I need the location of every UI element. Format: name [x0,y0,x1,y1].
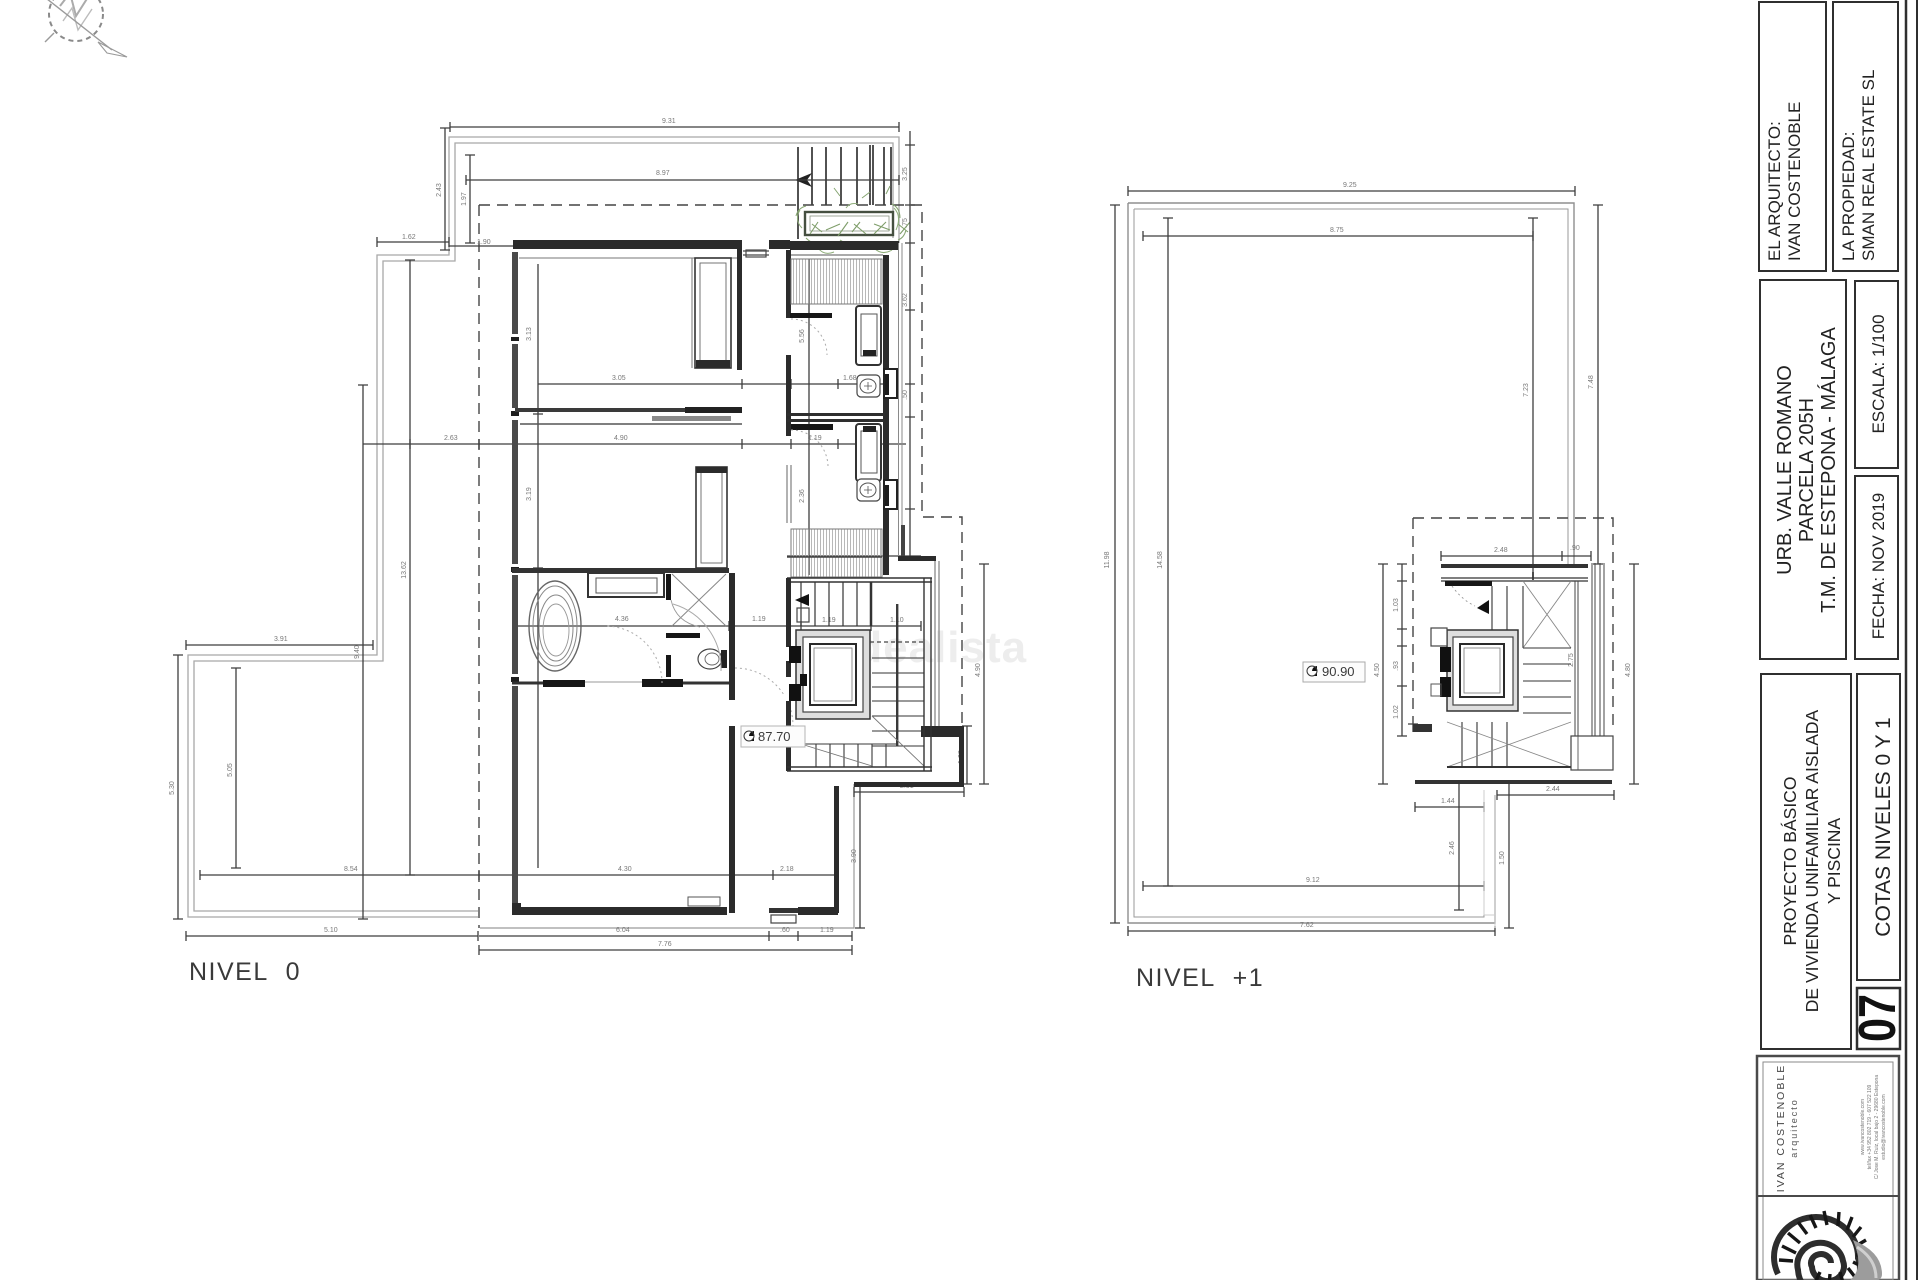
svg-text:.90: .90 [1570,545,1580,552]
svg-text:3.90: 3.90 [851,849,858,863]
svg-text:5.30: 5.30 [169,781,176,795]
svg-text:.93: .93 [1393,661,1400,671]
svg-text:NIVEL +1: NIVEL +1 [1136,964,1264,992]
svg-text:DE VIVIENDA UNIFAMILIAR AISLAD: DE VIVIENDA UNIFAMILIAR AISLADA [1802,709,1822,1012]
svg-text:9.12: 9.12 [1306,877,1320,884]
svg-text:4.90: 4.90 [614,435,628,442]
svg-text:FECHA: NOV 2019: FECHA: NOV 2019 [1869,493,1888,639]
svg-text:NIVEL 0: NIVEL 0 [189,958,301,986]
svg-text:4.30: 4.30 [618,866,632,873]
svg-text:13.62: 13.62 [401,561,408,579]
svg-text:87.70: 87.70 [758,729,791,744]
svg-text:07: 07 [1849,994,1907,1042]
svg-text:3.25: 3.25 [902,167,909,181]
svg-text:LA PROPIEDAD:: LA PROPIEDAD: [1839,132,1858,261]
svg-text:90.90: 90.90 [1322,664,1355,679]
svg-text:2.48: 2.48 [1494,547,1508,554]
svg-text:9.40: 9.40 [354,645,361,659]
svg-text:1.03: 1.03 [1393,598,1400,612]
svg-text:arquitecto: arquitecto [1789,1098,1799,1158]
svg-text:.60: .60 [780,927,790,934]
svg-text:.50: .50 [902,390,909,400]
svg-text:8.97: 8.97 [656,170,670,177]
svg-text:Y PISCINA: Y PISCINA [1824,818,1844,905]
svg-text:2.44: 2.44 [1546,786,1560,793]
svg-text:2.43: 2.43 [436,183,443,197]
svg-text:PROYECTO BÁSICO: PROYECTO BÁSICO [1780,777,1800,946]
svg-text:1.62: 1.62 [402,234,416,241]
svg-text:3.13: 3.13 [526,327,533,341]
svg-text:2.36: 2.36 [799,489,806,503]
svg-text:1.44: 1.44 [1441,798,1455,805]
svg-text:8.75: 8.75 [1330,227,1344,234]
svg-text:tel/fax +34 952 802 719 - 607: tel/fax +34 952 802 719 - 607 522 109 [1867,1084,1873,1169]
svg-text:4.36: 4.36 [615,616,629,623]
svg-text:6.04: 6.04 [616,927,630,934]
svg-text:1.02: 1.02 [1393,705,1400,719]
svg-text:EL ARQUITECTO:: EL ARQUITECTO: [1765,121,1784,261]
svg-text:4.80: 4.80 [1625,663,1632,677]
svg-text:3.19: 3.19 [526,487,533,501]
svg-text:7.23: 7.23 [1523,383,1530,397]
svg-text:C/ Jose M. Ruiz, local bajo 2: C/ Jose M. Ruiz, local bajo 2 - 29680 Es… [1874,1075,1880,1179]
svg-text:7.62: 7.62 [1300,922,1314,929]
svg-text:11.98: 11.98 [1104,551,1111,568]
svg-text:IVAN COSTENOBLE: IVAN COSTENOBLE [1775,1064,1787,1192]
svg-text:1.19: 1.19 [820,927,834,934]
svg-text:PARCELA 205H: PARCELA 205H [1796,398,1818,542]
svg-text:1.68: 1.68 [843,375,857,382]
svg-text:URB. VALLE ROMANO: URB. VALLE ROMANO [1774,365,1796,575]
svg-text:7.76: 7.76 [658,941,672,948]
svg-text:5.05: 5.05 [227,763,234,777]
svg-text:2.18: 2.18 [780,866,794,873]
svg-text:estudio@ivancostenoble.com: estudio@ivancostenoble.com [1881,1094,1887,1159]
svg-text:IVAN COSTENOBLE: IVAN COSTENOBLE [1785,102,1804,261]
svg-text:7.48: 7.48 [1588,375,1595,389]
svg-text:COTAS NIVELES 0 Y 1: COTAS NIVELES 0 Y 1 [1872,717,1895,936]
svg-text:5.56: 5.56 [799,329,806,343]
svg-text:2.46: 2.46 [1449,841,1456,855]
svg-text:4.50: 4.50 [1374,663,1381,677]
svg-text:1.50: 1.50 [1499,851,1506,865]
svg-text:3.91: 3.91 [274,636,288,643]
svg-text:1.19: 1.19 [752,616,766,623]
svg-text:ESCALA: 1/100: ESCALA: 1/100 [1869,314,1888,433]
svg-text:1.90: 1.90 [477,239,491,246]
svg-text:9.25: 9.25 [1343,182,1357,189]
svg-text:4.90: 4.90 [975,663,982,677]
svg-text:2.63: 2.63 [444,435,458,442]
svg-text:SMAN REAL ESTATE SL: SMAN REAL ESTATE SL [1859,70,1878,261]
svg-text:www.ivancostenoble.com: www.ivancostenoble.com [1860,1099,1866,1155]
svg-text:8.54: 8.54 [344,866,358,873]
svg-text:.75: .75 [902,218,909,228]
svg-text:T.M. DE ESTEPONA - MÁLAGA: T.M. DE ESTEPONA - MÁLAGA [1817,327,1840,613]
svg-text:14.58: 14.58 [1157,551,1164,569]
svg-text:3.05: 3.05 [612,375,626,382]
svg-text:2.75: 2.75 [1568,653,1575,667]
svg-text:3.62: 3.62 [902,293,909,307]
svg-text:1.97: 1.97 [461,192,468,206]
svg-text:9.31: 9.31 [662,118,676,125]
svg-text:5.10: 5.10 [324,927,338,934]
